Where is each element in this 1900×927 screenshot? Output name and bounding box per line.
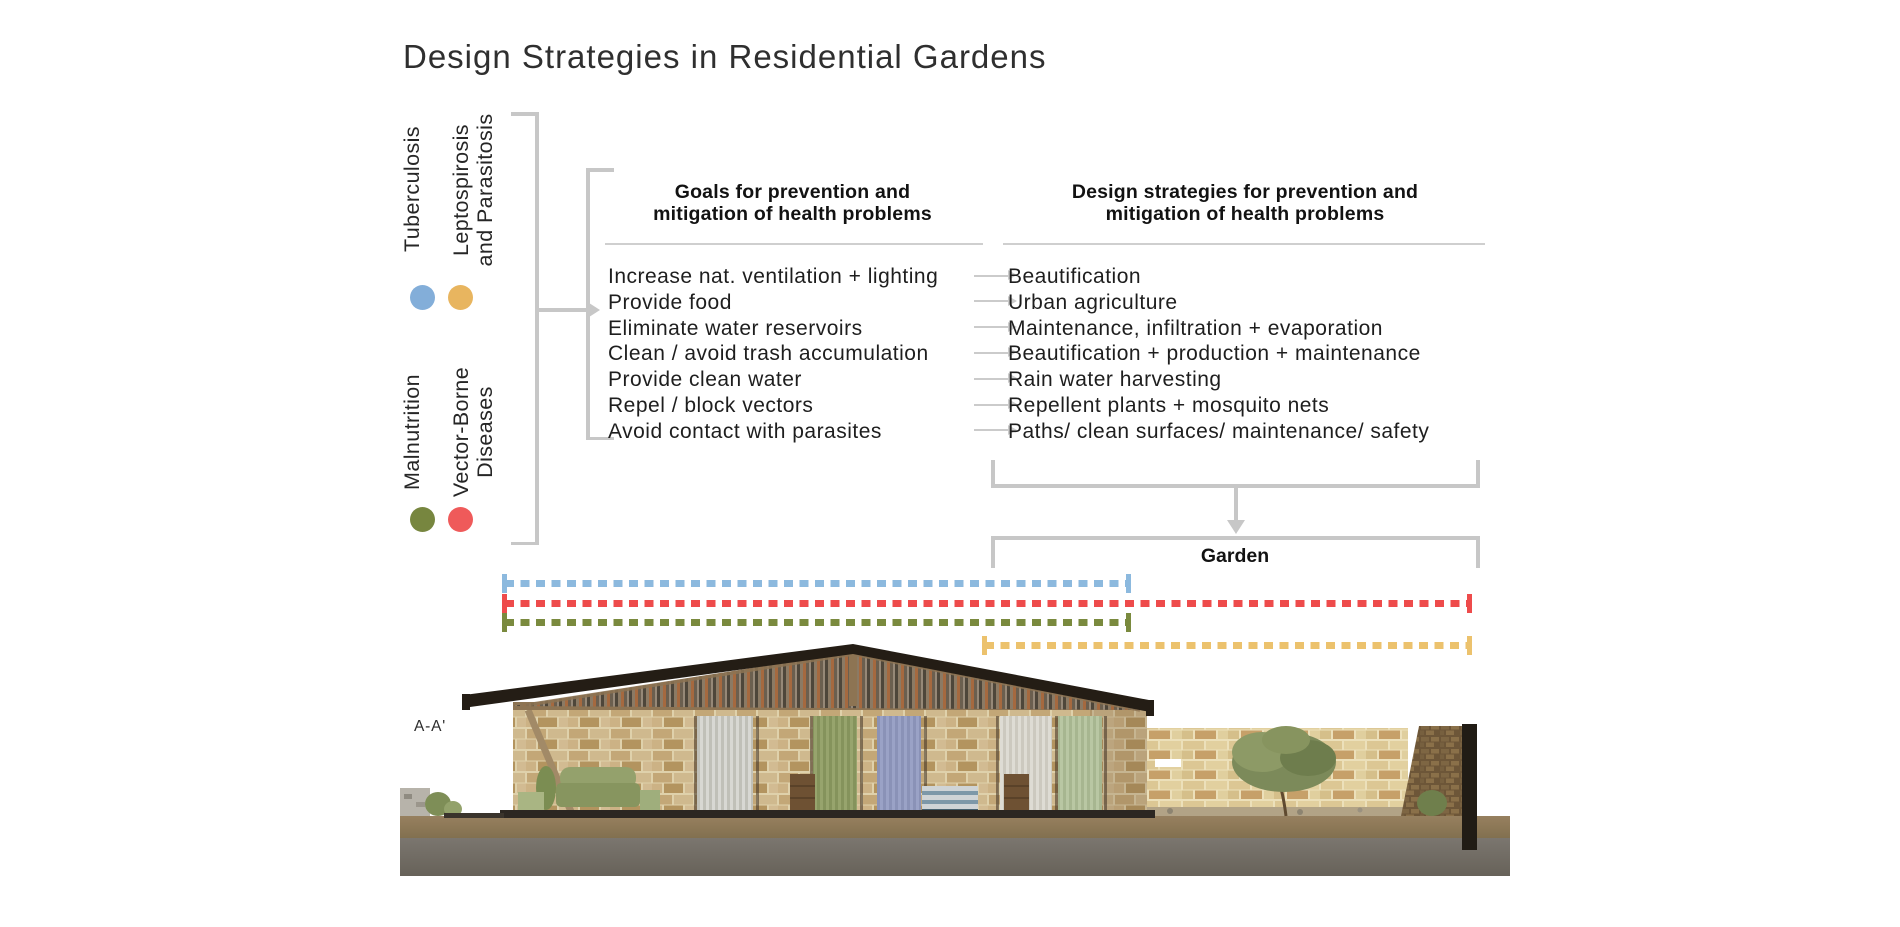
label-tuberculosis: Tuberculosis: [400, 126, 424, 252]
goals-header-line1: Goals for prevention and: [605, 181, 980, 203]
diseases-bracket-top-stub: [511, 112, 538, 116]
vector-borne-dot-icon: [448, 507, 473, 532]
goal-item: Repel / block vectors: [608, 393, 938, 419]
span-end-cap: [1467, 594, 1472, 613]
goals-header-rule: [605, 243, 983, 245]
floor-plinth: [500, 810, 1155, 818]
garden-label: Garden: [1100, 545, 1370, 568]
goal-to-strategy-arrow-icon: [974, 300, 1008, 302]
strategies-header: Design strategies for prevention and mit…: [1005, 181, 1485, 225]
strategy-item: Rain water harvesting: [1008, 367, 1429, 393]
leptospirosis-dot-icon: [448, 285, 473, 310]
goal-to-strategy-arrow-icon: [974, 352, 1008, 354]
goal-item: Eliminate water reservoirs: [608, 316, 938, 342]
building-section-render: [400, 640, 1510, 880]
goal-item: Avoid contact with parasites: [608, 419, 938, 445]
goals-bracket-vertical: [586, 168, 590, 440]
red-span-line: [505, 600, 1470, 607]
blue-span-line: [505, 580, 1129, 587]
goal-to-strategy-arrow-icon: [974, 378, 1008, 380]
strategies-to-garden-arrowhead-icon: [1227, 520, 1245, 534]
goal-to-strategy-arrow-icon: [974, 275, 1008, 277]
goals-bracket-top-stub: [586, 168, 614, 172]
span-end-cap: [502, 594, 507, 613]
label-vector-borne-diseases: Vector-Borne Diseases: [449, 367, 497, 497]
label-vector-borne-line2: Diseases: [473, 367, 497, 497]
strategies-header-rule: [1003, 243, 1485, 245]
label-leptospirosis-parasitosis: Leptospirosis and Parasitosis: [449, 114, 497, 267]
strategy-item: Paths/ clean surfaces/ maintenance/ safe…: [1008, 419, 1429, 445]
soil-band: [400, 816, 1510, 838]
page-title: Design Strategies in Residential Gardens: [403, 38, 1047, 76]
label-vector-borne-line1: Vector-Borne: [449, 367, 473, 497]
goals-header: Goals for prevention and mitigation of h…: [605, 181, 980, 225]
label-leptospirosis-line2: and Parasitosis: [473, 114, 497, 267]
diseases-to-goals-arrow-shaft: [535, 308, 587, 312]
left-planting: [400, 788, 462, 817]
green-span-line: [505, 619, 1129, 626]
strategies-bracket-left-stub: [991, 460, 995, 487]
goals-header-line2: mitigation of health problems: [605, 203, 980, 225]
goal-to-strategy-arrow-icon: [974, 404, 1008, 406]
floor-step: [444, 813, 504, 818]
goal-item: Provide food: [608, 290, 938, 316]
label-malnutrition: Malnutrition: [400, 374, 424, 490]
garden-bracket-right-stub: [1476, 536, 1480, 568]
strategies-header-line2: mitigation of health problems: [1005, 203, 1485, 225]
span-end-cap: [1126, 574, 1131, 593]
span-end-cap: [502, 613, 507, 632]
tuberculosis-dot-icon: [410, 285, 435, 310]
goal-to-strategy-arrow-icon: [974, 429, 1008, 431]
strategies-header-line1: Design strategies for prevention and: [1005, 181, 1485, 203]
garden-bracket-left-stub: [991, 536, 995, 568]
goal-item: Increase nat. ventilation + lighting: [608, 264, 938, 290]
strategy-item: Beautification: [1008, 264, 1429, 290]
diseases-bracket-bottom-stub: [511, 542, 538, 546]
span-end-cap: [502, 574, 507, 593]
label-leptospirosis-line1: Leptospirosis: [449, 114, 473, 267]
goal-to-strategy-arrow-icon: [974, 326, 1008, 328]
garden-bracket-horizontal: [991, 536, 1480, 540]
strategies-bracket-right-stub: [1476, 460, 1480, 487]
span-end-cap: [1126, 613, 1131, 632]
diseases-bracket-vertical: [535, 112, 539, 545]
strategy-item: Beautification + production + maintenanc…: [1008, 341, 1429, 367]
goal-item: Provide clean water: [608, 367, 938, 393]
goal-item: Clean / avoid trash accumulation: [608, 341, 938, 367]
strategy-item: Maintenance, infiltration + evaporation: [1008, 316, 1429, 342]
base-band: [400, 838, 1510, 876]
diagram-canvas: Design Strategies in Residential Gardens…: [0, 0, 1900, 927]
strategies-to-garden-arrow-shaft: [1234, 487, 1238, 521]
malnutrition-dot-icon: [410, 507, 435, 532]
strategy-item: Urban agriculture: [1008, 290, 1429, 316]
strategy-item: Repellent plants + mosquito nets: [1008, 393, 1429, 419]
goals-list: Increase nat. ventilation + lighting Pro…: [608, 264, 938, 445]
strategies-list: Beautification Urban agriculture Mainten…: [1008, 264, 1429, 445]
